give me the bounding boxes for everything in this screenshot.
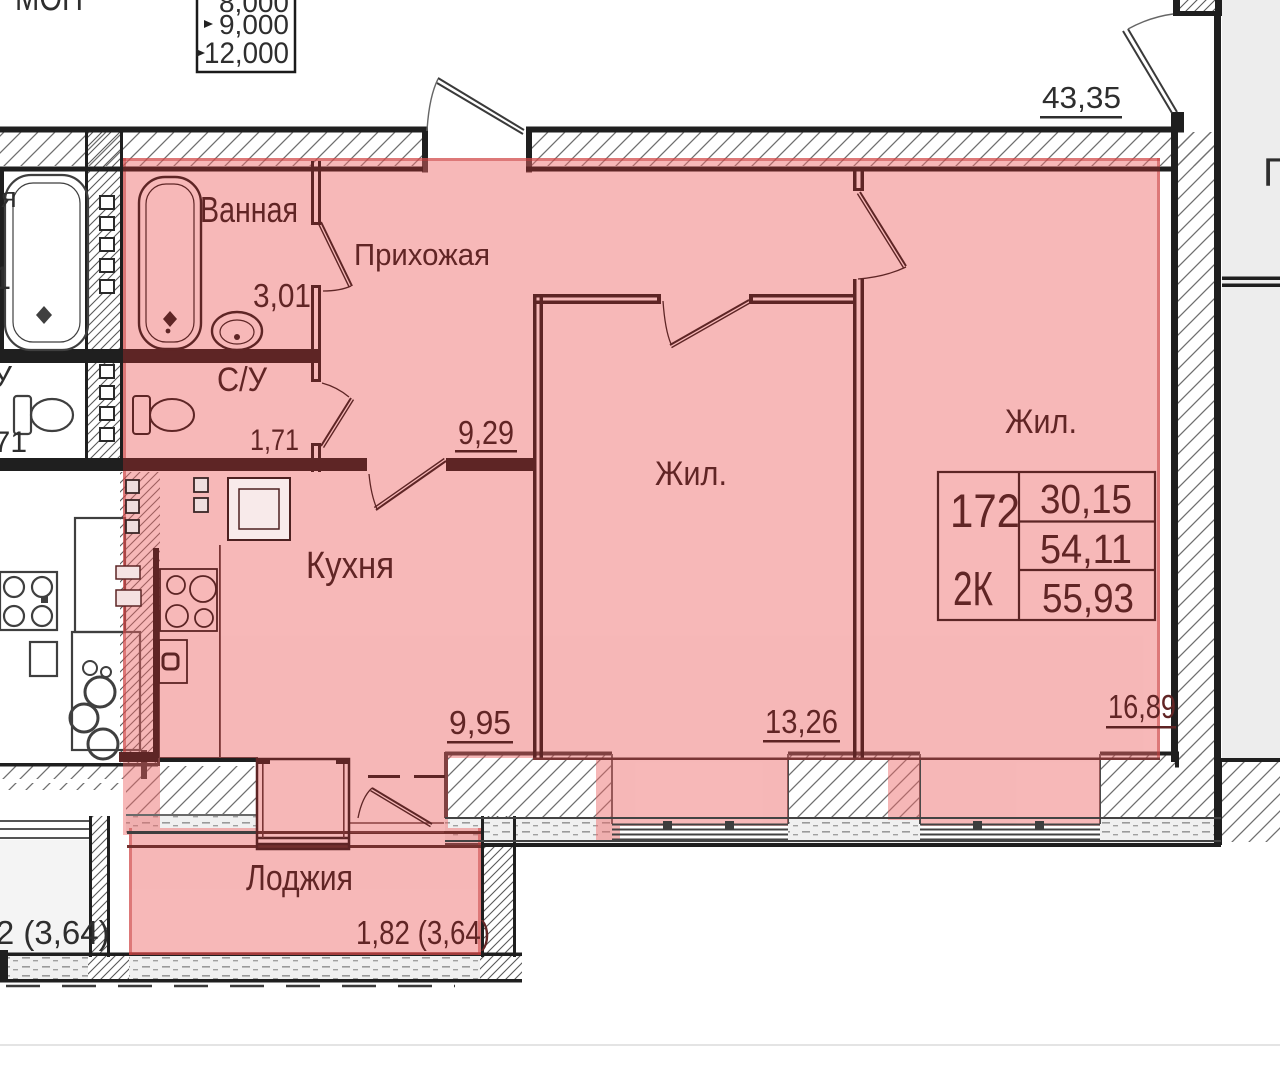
svg-text:16,89: 16,89 — [1108, 688, 1176, 725]
svg-text:12,000: 12,000 — [204, 37, 289, 70]
svg-text:30,15: 30,15 — [1040, 476, 1132, 522]
svg-text:172: 172 — [950, 484, 1020, 537]
svg-text:Ванная: Ванная — [200, 189, 298, 230]
svg-text:1,82 (3,64): 1,82 (3,64) — [0, 914, 110, 951]
svg-text:Пр: Пр — [1263, 151, 1280, 195]
svg-text:МОП: МОП — [15, 0, 83, 19]
svg-text:1,71: 1,71 — [0, 426, 27, 459]
svg-text:Жил.: Жил. — [655, 455, 727, 493]
svg-text:3,01: 3,01 — [0, 260, 11, 296]
svg-text:Лоджия: Лоджия — [246, 857, 353, 898]
svg-text:43,35: 43,35 — [1042, 80, 1121, 115]
svg-text:С/У: С/У — [217, 361, 267, 399]
svg-text:С/У: С/У — [0, 359, 12, 394]
svg-text:2К: 2К — [953, 563, 993, 616]
svg-text:54,11: 54,11 — [1040, 526, 1132, 572]
svg-text:Кухня: Кухня — [306, 545, 394, 587]
svg-text:13,26: 13,26 — [765, 703, 838, 740]
svg-text:1,82 (3,64): 1,82 (3,64) — [356, 914, 490, 951]
svg-text:9,000: 9,000 — [219, 9, 289, 40]
svg-text:9,29: 9,29 — [458, 414, 514, 451]
svg-text:55,93: 55,93 — [1042, 575, 1134, 621]
svg-text:9,95: 9,95 — [449, 704, 511, 741]
svg-text:я: я — [1, 182, 17, 214]
svg-text:1,71: 1,71 — [250, 424, 299, 457]
svg-text:Жил.: Жил. — [1005, 403, 1077, 441]
svg-text:Прихожая: Прихожая — [354, 237, 490, 272]
svg-text:3,01: 3,01 — [253, 277, 311, 314]
